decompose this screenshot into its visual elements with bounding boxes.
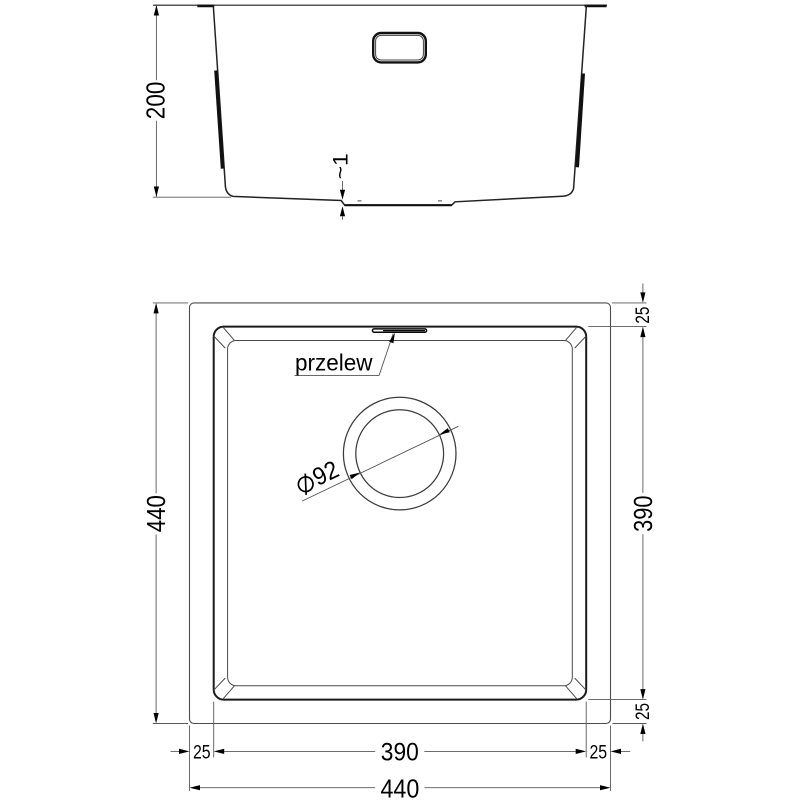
svg-text:25: 25 xyxy=(632,306,654,323)
svg-text:przelew: przelew xyxy=(295,349,373,375)
svg-text:200: 200 xyxy=(141,82,171,120)
svg-text:~1: ~1 xyxy=(330,153,353,179)
svg-text:25: 25 xyxy=(193,741,211,763)
svg-text:440: 440 xyxy=(141,495,171,532)
svg-text:25: 25 xyxy=(632,703,654,720)
svg-text:390: 390 xyxy=(381,738,419,766)
svg-text:390: 390 xyxy=(628,496,658,532)
svg-text:440: 440 xyxy=(380,774,419,800)
svg-text:25: 25 xyxy=(589,741,607,763)
